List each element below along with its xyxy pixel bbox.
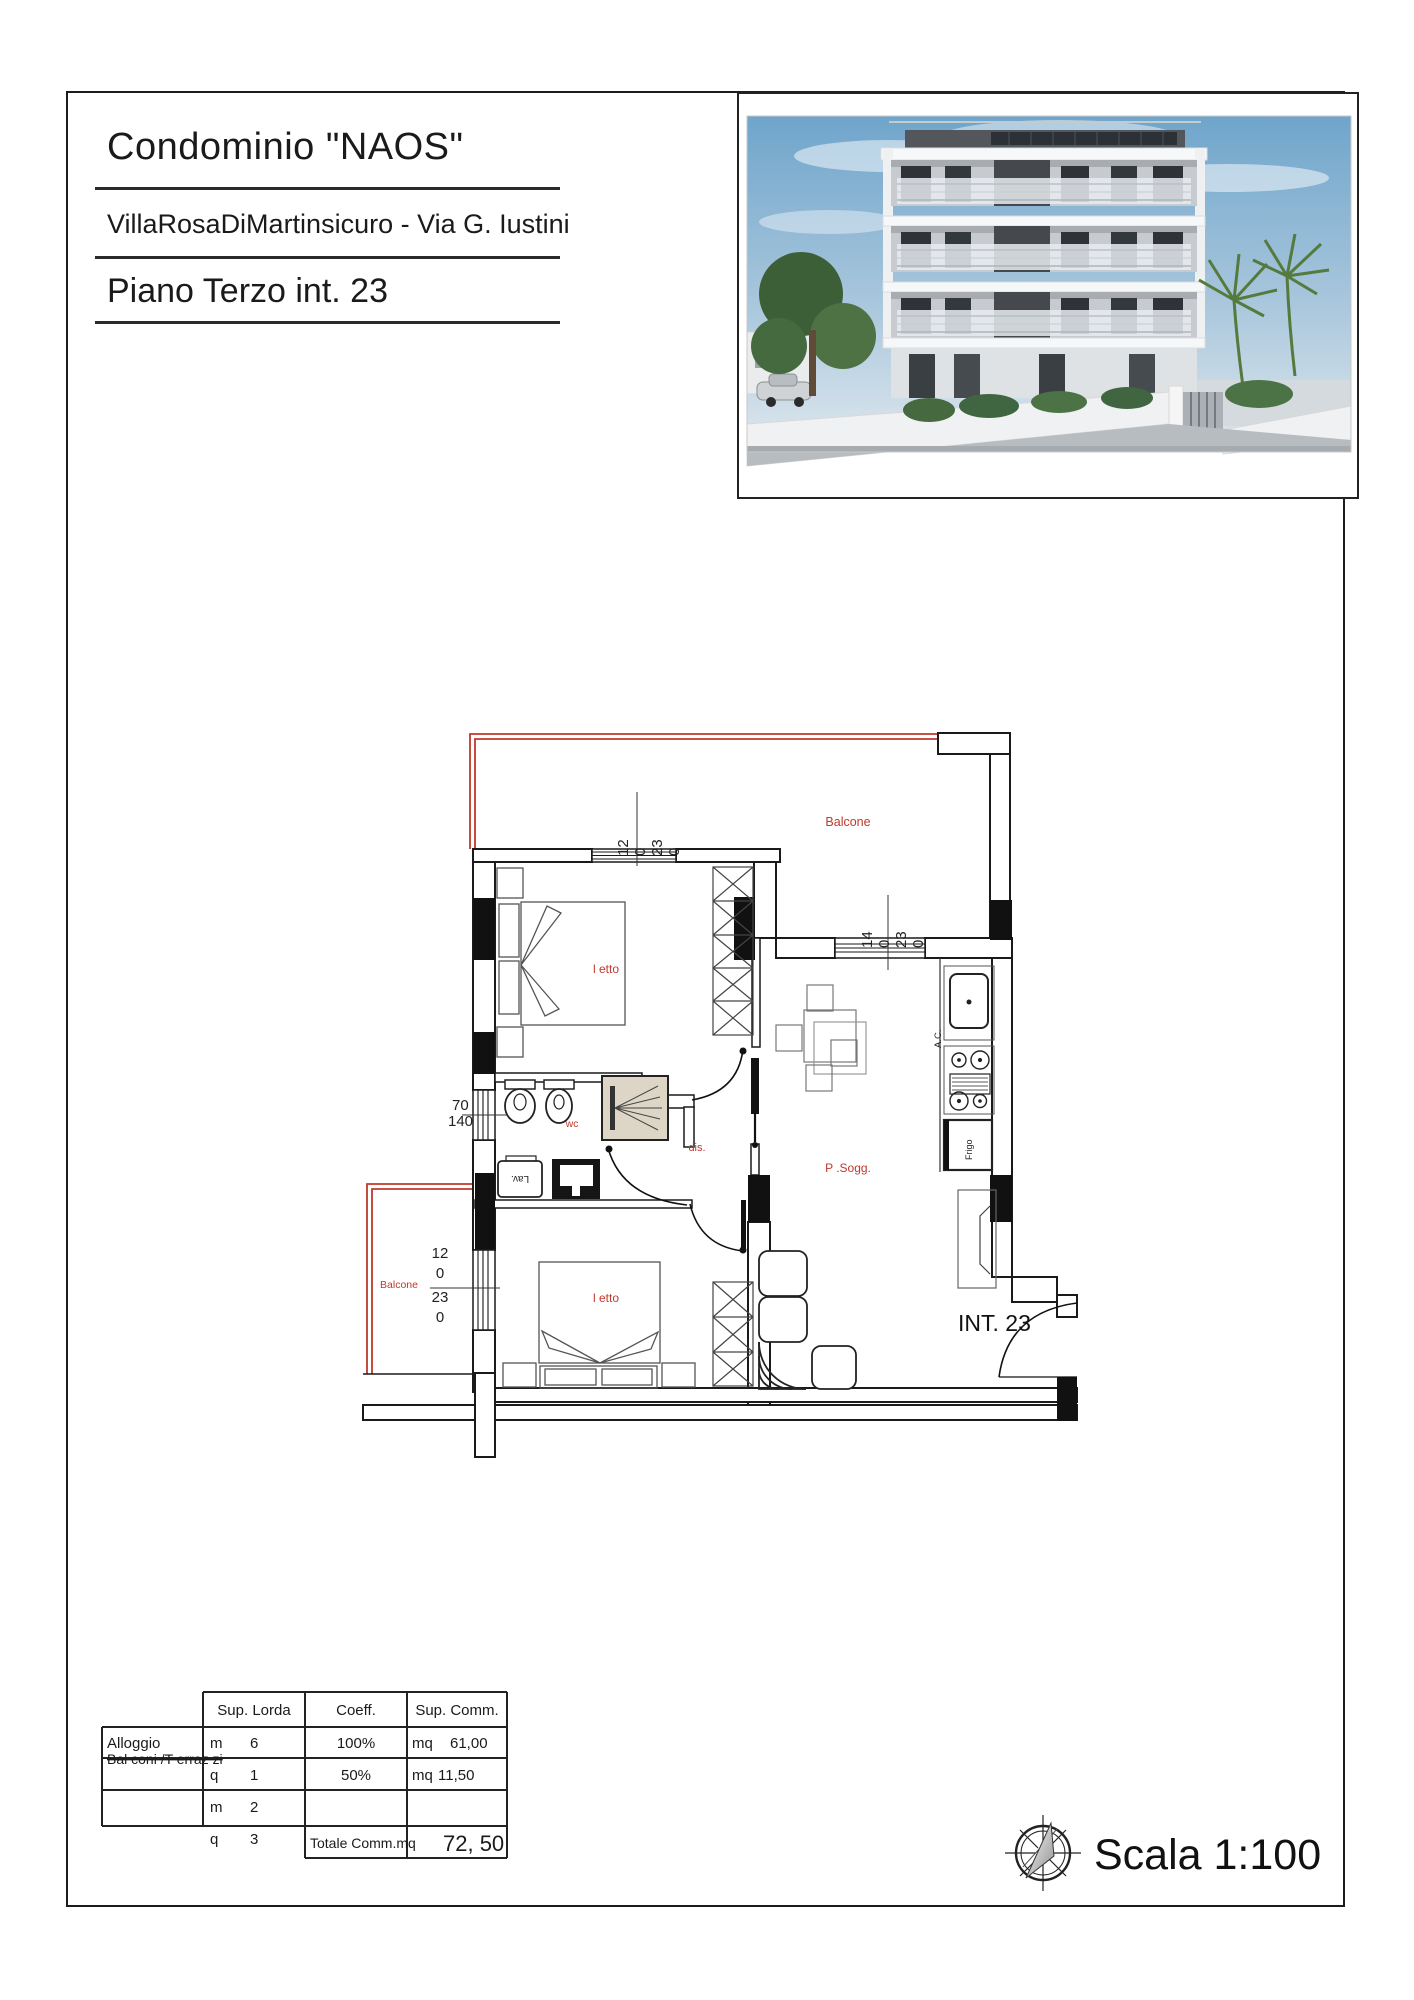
label-lav: Lav. <box>511 1173 529 1184</box>
svg-text:23: 23 <box>432 1289 449 1306</box>
svg-text:6: 6 <box>250 1735 258 1752</box>
svg-text:0: 0 <box>436 1265 444 1282</box>
bed-double-bottom <box>503 1262 695 1388</box>
svg-text:23: 23 <box>893 931 910 948</box>
svg-text:0: 0 <box>910 940 927 948</box>
label-letto-bottom: l etto <box>593 1291 619 1305</box>
svg-text:0: 0 <box>632 848 649 856</box>
row-label-struck: Bal coni /T erraz zi <box>107 1751 223 1767</box>
svg-text:1: 1 <box>250 1767 258 1784</box>
label-wc: wc <box>565 1118 579 1130</box>
building-rendering-image <box>739 94 1357 497</box>
compass-icon <box>1002 1812 1084 1894</box>
page-subtitle: VillaRosaDiMartinsicuro - Via G. Iustini <box>107 209 570 240</box>
scale-label: Scala 1:100 <box>1094 1831 1321 1880</box>
svg-text:0: 0 <box>876 940 893 948</box>
col-header: Sup. Lorda <box>217 1702 291 1719</box>
balcony-outline-top <box>470 734 939 854</box>
svg-text:mq: mq <box>412 1767 433 1784</box>
dining-table <box>776 985 866 1091</box>
svg-text:23: 23 <box>649 839 666 856</box>
svg-text:3: 3 <box>250 1831 258 1848</box>
svg-text:140: 140 <box>448 1113 473 1130</box>
label-letto-top: l etto <box>593 962 619 976</box>
dim-kitchen-window: 14 <box>859 931 876 948</box>
dim-top-window: 12 <box>615 839 632 856</box>
divider <box>95 256 560 259</box>
col-header: Sup. Comm. <box>415 1702 498 1719</box>
page-title: Condominio "NAOS" <box>107 126 464 169</box>
svg-text:50%: 50% <box>341 1767 371 1784</box>
row-label: Alloggio <box>107 1735 160 1752</box>
document-page: { "theme": { "accent_red": "#c0392b", "l… <box>0 0 1414 2000</box>
divider <box>95 321 560 324</box>
building-photo-frame <box>737 92 1359 499</box>
svg-text:q: q <box>210 1767 218 1784</box>
label-balcone-top: Balcone <box>825 815 870 829</box>
label-balcone-left: Balcone <box>380 1279 418 1291</box>
label-soggiorno: P .Sogg. <box>825 1161 871 1175</box>
washbasin <box>552 1159 600 1199</box>
label-ac: A.C. <box>933 1030 944 1048</box>
floor-plan: 12 0 23 0 14 0 23 0 70 140 12 0 23 0 Bal… <box>330 710 1100 1480</box>
label-frigo: Frigo <box>964 1139 974 1160</box>
dimension-lines <box>430 792 888 1288</box>
total-value: 72, 50 <box>443 1831 504 1856</box>
unit-label: INT. 23 <box>958 1310 1031 1336</box>
total-label: Totale Comm.mq <box>310 1835 416 1851</box>
stove <box>944 1046 994 1114</box>
svg-text:0: 0 <box>436 1309 444 1326</box>
floor-label: Piano Terzo int. 23 <box>107 272 388 311</box>
room-labels: Balcone Balcone l etto l etto wc dis. P … <box>380 815 871 1305</box>
svg-text:100%: 100% <box>337 1735 375 1752</box>
svg-text:m: m <box>210 1799 223 1816</box>
bidet <box>544 1080 574 1123</box>
svg-text:mq: mq <box>412 1735 433 1752</box>
area-summary-table: Sup. Lorda Coeff. Sup. Comm. Alloggio Ba… <box>85 1680 525 1870</box>
svg-text:2: 2 <box>250 1799 258 1816</box>
divider <box>95 187 560 190</box>
svg-text:m: m <box>210 1735 223 1752</box>
kitchen-sink <box>944 966 994 1040</box>
shower <box>602 1076 668 1140</box>
svg-text:11,50: 11,50 <box>438 1767 474 1784</box>
toilet <box>505 1080 535 1123</box>
label-dis: dis. <box>688 1142 705 1154</box>
dim-bath-window: 70 <box>452 1097 469 1114</box>
svg-text:61,00: 61,00 <box>450 1735 488 1752</box>
svg-text:q: q <box>210 1831 218 1848</box>
sofa <box>759 1251 856 1389</box>
svg-text:0: 0 <box>666 848 683 856</box>
col-header: Coeff. <box>336 1702 376 1719</box>
dim-bedroom2-window: 12 <box>432 1245 449 1262</box>
